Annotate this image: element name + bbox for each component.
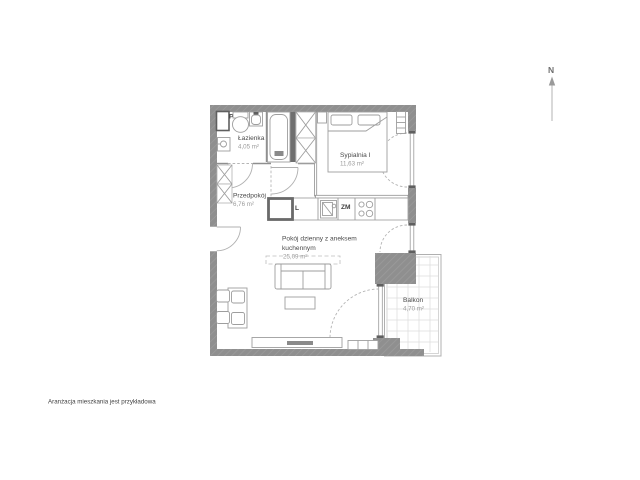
room-area-sypialnia: 11,63 m²: [340, 161, 364, 168]
bedroom-wardrobe-icon: [296, 112, 316, 163]
tv-icon: [287, 341, 313, 345]
sofa-icon: [275, 264, 331, 289]
toilet-icon: [233, 112, 249, 132]
room-label-pokoj-line1: Pokój dzienny z aneksem: [282, 236, 357, 243]
coffee-table-icon: [285, 297, 315, 309]
bedroom: Sypialnia I 11,63 m²: [318, 112, 406, 173]
room-area-przedpokoj: 6,76 m²: [233, 201, 254, 208]
wall-balcony-upper-block: [375, 253, 416, 284]
living-room: Pokój dzienny z aneksem kuchennym 25,09 …: [217, 236, 379, 350]
floor-plan-drawing: Balkon 4,70 m²: [0, 0, 640, 480]
wall-bottom: [210, 349, 424, 356]
washbasin-icon: [218, 138, 231, 152]
room-label-sypialnia: Sypialnia I: [340, 152, 371, 159]
north-arrow-head-icon: [549, 77, 555, 86]
compass: N: [548, 65, 555, 121]
wall-bedroom-bottom: [316, 195, 409, 198]
fridge-label: L: [295, 205, 299, 212]
dishwasher-label: ZM: [341, 204, 351, 211]
room-area-lazienka: 4,05 m²: [238, 144, 259, 151]
wall-right-middle: [408, 188, 416, 223]
balcony-door: [330, 284, 384, 338]
bathtub-icon: [268, 112, 291, 162]
room-area-pokoj: 25,09 m²: [283, 254, 307, 261]
wall-top: [210, 105, 416, 112]
kitchen-shaft-block: [269, 199, 293, 220]
hall-wardrobe-icon: [217, 165, 232, 203]
nightstand-icon: [318, 112, 327, 123]
room-label-balkon: Balkon: [403, 297, 423, 304]
floor-plan-page: Balkon 4,70 m²: [0, 0, 640, 480]
room-label-lazienka: Łazienka: [238, 135, 265, 142]
north-label: N: [548, 65, 554, 75]
room-label-pokoj-line2: kuchennym: [282, 245, 316, 252]
bathroom-sink-icon: [250, 112, 263, 126]
wall-left-lower: [210, 252, 217, 356]
tv-stand-icon: [252, 338, 342, 348]
room-label-przedpokoj: Przedpokój: [233, 193, 267, 200]
dining-set-icon: [217, 288, 248, 328]
wall-right-upper: [408, 105, 416, 131]
plan-caption: Aranżacja mieszkania jest przykładowa: [48, 399, 156, 406]
living-room-window: [380, 223, 416, 253]
shaft-box: [217, 112, 230, 131]
room-area-balkon: 4,70 m²: [403, 306, 424, 313]
entrance-door: [210, 226, 241, 252]
wall-bathtub-niche: [290, 112, 296, 162]
radiator-icon: [397, 112, 406, 134]
kitchen: L ZM: [268, 198, 408, 220]
bedroom-door: [271, 168, 298, 195]
side-cabinet-icon: [348, 341, 378, 350]
bathroom: P Łazienka 4,05 m²: [217, 112, 291, 163]
